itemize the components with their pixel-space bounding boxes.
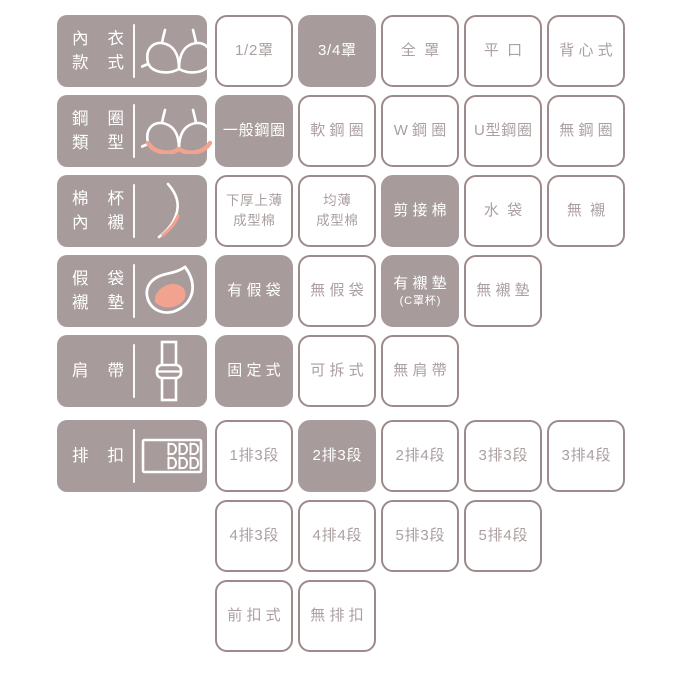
option-cup-lining-3[interactable]: 剪接棉 bbox=[381, 175, 459, 247]
category-label-line: 棉杯 bbox=[72, 191, 124, 208]
option-bra-style-3[interactable]: 全罩 bbox=[381, 15, 459, 87]
product-spec-sheet: { "colors": { "mauve": "#a79b9c", "borde… bbox=[0, 0, 675, 675]
category-label-text: 內衣款式 bbox=[72, 31, 124, 71]
option-cup-lining-1[interactable]: 下厚上薄成型棉 bbox=[215, 175, 293, 247]
option-label: 有假袋 bbox=[223, 282, 285, 301]
option-hooks-row3-2[interactable]: 無排扣 bbox=[298, 580, 376, 652]
option-hooks-4[interactable]: 3排3段 bbox=[464, 420, 542, 492]
category-label-line: 鋼圈 bbox=[72, 111, 124, 128]
option-label: 1/2罩 bbox=[234, 42, 274, 61]
option-label: 2排4段 bbox=[395, 447, 445, 466]
option-label: 無襯墊 bbox=[472, 282, 534, 301]
option-hooks-2[interactable]: 2排3段 bbox=[298, 420, 376, 492]
option-label: 無鋼圈 bbox=[555, 122, 617, 141]
option-label: 3/4罩 bbox=[317, 42, 357, 61]
category-label-text: 棉杯內襯 bbox=[72, 191, 124, 231]
option-pad-pocket-3[interactable]: 有襯墊(C罩杯) bbox=[381, 255, 459, 327]
option-hooks-row2-3[interactable]: 5排3段 bbox=[381, 500, 459, 572]
option-strap-3[interactable]: 無肩帶 bbox=[381, 335, 459, 407]
option-cup-lining-4[interactable]: 水袋 bbox=[464, 175, 542, 247]
option-hooks-1[interactable]: 1排3段 bbox=[215, 420, 293, 492]
option-label: 軟鋼圈 bbox=[306, 122, 368, 141]
option-label: 2排3段 bbox=[312, 447, 362, 466]
category-label-text: 鋼圈類型 bbox=[72, 111, 124, 151]
option-label: 全罩 bbox=[393, 42, 448, 61]
category-label-line: 內衣 bbox=[72, 31, 124, 48]
option-label: 1排3段 bbox=[229, 447, 279, 466]
option-strap-2[interactable]: 可拆式 bbox=[298, 335, 376, 407]
category-label-bra-style: 內衣款式 bbox=[57, 15, 207, 87]
option-label: W鋼圈 bbox=[390, 122, 451, 141]
option-pad-pocket-1[interactable]: 有假袋 bbox=[215, 255, 293, 327]
option-hooks-5[interactable]: 3排4段 bbox=[547, 420, 625, 492]
category-label-text: 假袋襯墊 bbox=[72, 271, 124, 311]
bra-icon bbox=[141, 28, 217, 74]
category-label-wire-type: 鋼圈類型 bbox=[57, 95, 207, 167]
option-wire-type-2[interactable]: 軟鋼圈 bbox=[298, 95, 376, 167]
option-label: 3排3段 bbox=[478, 447, 528, 466]
option-label: 成型棉 bbox=[315, 213, 358, 230]
option-pad-pocket-2[interactable]: 無假袋 bbox=[298, 255, 376, 327]
label-divider bbox=[133, 24, 135, 78]
option-label: 無假袋 bbox=[306, 282, 368, 301]
category-label-text: 肩帶 bbox=[72, 363, 124, 380]
option-label: U型鋼圈 bbox=[473, 122, 533, 141]
option-label: 均薄 bbox=[322, 193, 351, 210]
option-label: 無襯 bbox=[559, 202, 614, 221]
option-label: 成型棉 bbox=[232, 213, 275, 230]
category-label-cup-lining: 棉杯內襯 bbox=[57, 175, 207, 247]
category-label-line: 款式 bbox=[72, 55, 124, 72]
option-label: 背心式 bbox=[555, 42, 617, 61]
label-divider bbox=[133, 104, 135, 158]
category-label-line: 假袋 bbox=[72, 271, 124, 288]
option-label: 可拆式 bbox=[306, 362, 368, 381]
category-label-text: 排扣 bbox=[72, 448, 124, 465]
option-label: 無排扣 bbox=[306, 607, 368, 626]
option-label: 下厚上薄 bbox=[225, 193, 282, 210]
option-label: 前扣式 bbox=[223, 607, 285, 626]
category-label-line: 類型 bbox=[72, 135, 124, 152]
category-label-hooks: 排扣 bbox=[57, 420, 207, 492]
option-label: 4排4段 bbox=[312, 527, 362, 546]
option-bra-style-2[interactable]: 3/4罩 bbox=[298, 15, 376, 87]
option-label: 無肩帶 bbox=[389, 362, 451, 381]
option-label: 有襯墊 bbox=[389, 275, 451, 294]
option-pad-pocket-4[interactable]: 無襯墊 bbox=[464, 255, 542, 327]
label-divider bbox=[133, 344, 135, 398]
strap-icon bbox=[141, 340, 197, 402]
category-label-pad-pocket: 假袋襯墊 bbox=[57, 255, 207, 327]
option-label: 一般鋼圈 bbox=[222, 122, 286, 141]
option-label: 水袋 bbox=[476, 202, 531, 221]
option-cup-lining-5[interactable]: 無襯 bbox=[547, 175, 625, 247]
label-divider bbox=[133, 184, 135, 238]
option-bra-style-1[interactable]: 1/2罩 bbox=[215, 15, 293, 87]
option-label: 4排3段 bbox=[229, 527, 279, 546]
label-divider bbox=[133, 429, 135, 483]
option-sublabel: (C罩杯) bbox=[399, 296, 442, 307]
option-hooks-row3-1[interactable]: 前扣式 bbox=[215, 580, 293, 652]
option-hooks-row2-4[interactable]: 5排4段 bbox=[464, 500, 542, 572]
option-bra-style-5[interactable]: 背心式 bbox=[547, 15, 625, 87]
option-wire-type-5[interactable]: 無鋼圈 bbox=[547, 95, 625, 167]
category-label-line: 排扣 bbox=[72, 448, 124, 465]
label-divider bbox=[133, 264, 135, 318]
pad-icon bbox=[141, 265, 197, 317]
option-hooks-3[interactable]: 2排4段 bbox=[381, 420, 459, 492]
option-hooks-row2-1[interactable]: 4排3段 bbox=[215, 500, 293, 572]
option-label: 5排4段 bbox=[478, 527, 528, 546]
option-cup-lining-2[interactable]: 均薄成型棉 bbox=[298, 175, 376, 247]
category-label-line: 內襯 bbox=[72, 215, 124, 232]
category-label-line: 襯墊 bbox=[72, 295, 124, 312]
cup-icon bbox=[141, 182, 197, 240]
option-hooks-row2-2[interactable]: 4排4段 bbox=[298, 500, 376, 572]
wire-bra-icon bbox=[141, 108, 217, 154]
option-bra-style-4[interactable]: 平口 bbox=[464, 15, 542, 87]
option-label: 平口 bbox=[476, 42, 531, 61]
category-label-line: 肩帶 bbox=[72, 363, 124, 380]
option-label: 3排4段 bbox=[561, 447, 611, 466]
option-wire-type-1[interactable]: 一般鋼圈 bbox=[215, 95, 293, 167]
option-label: 5排3段 bbox=[395, 527, 445, 546]
hooks-icon bbox=[141, 436, 203, 476]
option-strap-1[interactable]: 固定式 bbox=[215, 335, 293, 407]
option-label: 固定式 bbox=[223, 362, 285, 381]
option-label: 剪接棉 bbox=[389, 202, 451, 221]
option-wire-type-3[interactable]: W鋼圈 bbox=[381, 95, 459, 167]
category-label-strap: 肩帶 bbox=[57, 335, 207, 407]
option-wire-type-4[interactable]: U型鋼圈 bbox=[464, 95, 542, 167]
